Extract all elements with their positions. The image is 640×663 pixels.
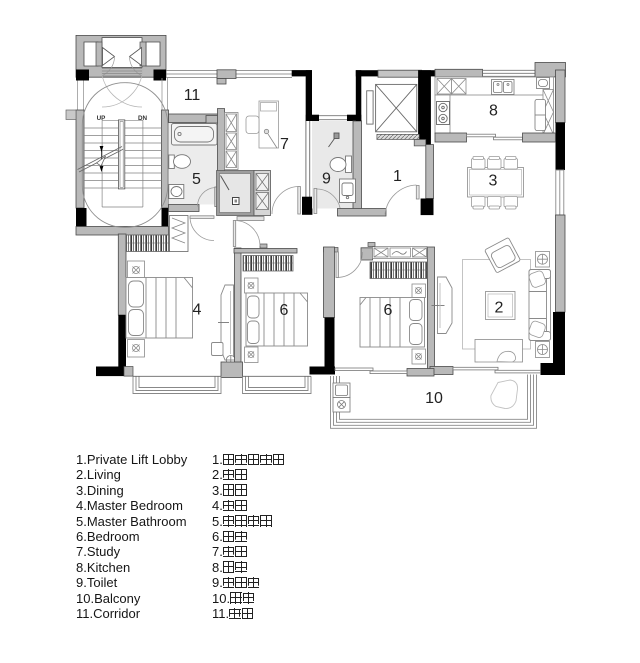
svg-text:1: 1 — [393, 168, 402, 185]
svg-text:2: 2 — [495, 300, 504, 317]
svg-text:7: 7 — [280, 136, 289, 153]
svg-text:8: 8 — [489, 103, 498, 120]
svg-text:6: 6 — [280, 302, 289, 319]
svg-text:6: 6 — [384, 302, 393, 319]
svg-text:11: 11 — [184, 87, 201, 104]
svg-text:5: 5 — [192, 171, 201, 188]
svg-text:10: 10 — [425, 390, 443, 407]
svg-text:DN: DN — [138, 115, 148, 122]
svg-text:3: 3 — [489, 173, 498, 190]
svg-text:UP: UP — [97, 115, 106, 122]
svg-text:9: 9 — [322, 171, 331, 188]
svg-text:4: 4 — [193, 302, 202, 319]
